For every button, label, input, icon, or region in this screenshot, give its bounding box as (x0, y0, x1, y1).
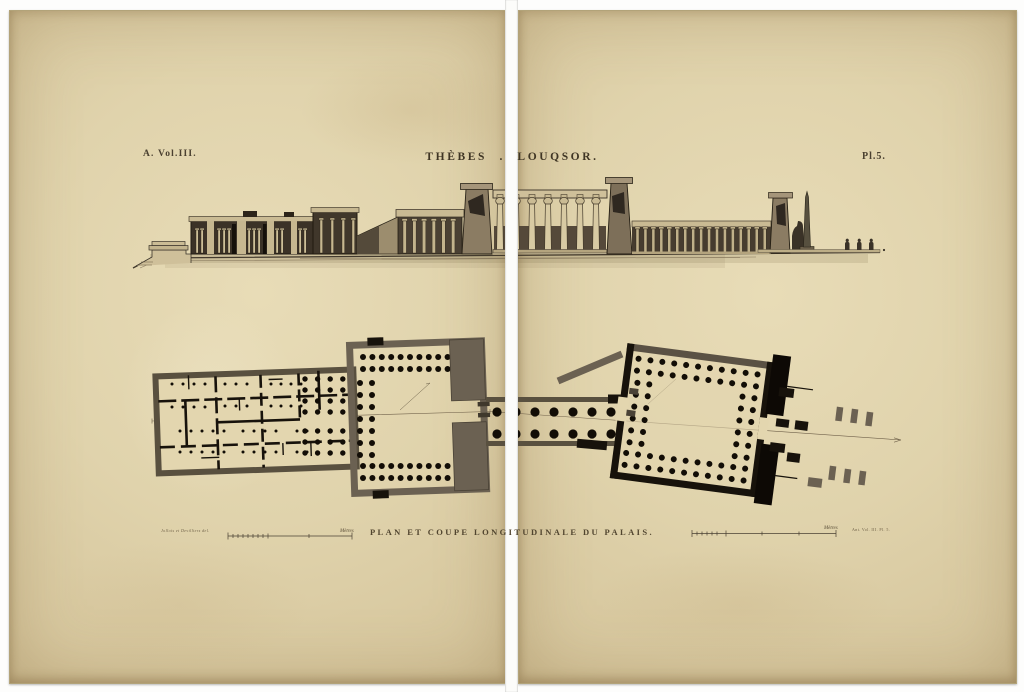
sanctuary-plan (155, 370, 356, 474)
small-figures (845, 239, 885, 251)
statue-bases-plan (828, 407, 873, 486)
pylon-left (461, 184, 493, 255)
plate-number: Pl.5. (862, 151, 886, 162)
credit-left: Jollois et Devilliers del. (161, 528, 210, 533)
ramp-wedge (357, 216, 400, 254)
plan-section (152, 334, 901, 509)
plate-seam (505, 0, 518, 692)
scale-label-left: Mètres (340, 529, 354, 534)
pylon-terminal (769, 193, 793, 254)
antechamber-block (311, 208, 359, 255)
colonnade-a (396, 210, 464, 255)
plate-scan: A. Vol.III. THÈBES . LOUQSOR. Pl.5. PLAN… (0, 0, 1024, 692)
platform (758, 250, 880, 253)
pylon-right (606, 178, 633, 255)
colonnade-b (632, 221, 771, 254)
sanctuary-section (189, 211, 315, 254)
quay (136, 242, 191, 267)
scale-label-right: Mètres (824, 526, 838, 531)
credit-right: Ant. Vol. III. Pl. 5. (852, 527, 890, 532)
